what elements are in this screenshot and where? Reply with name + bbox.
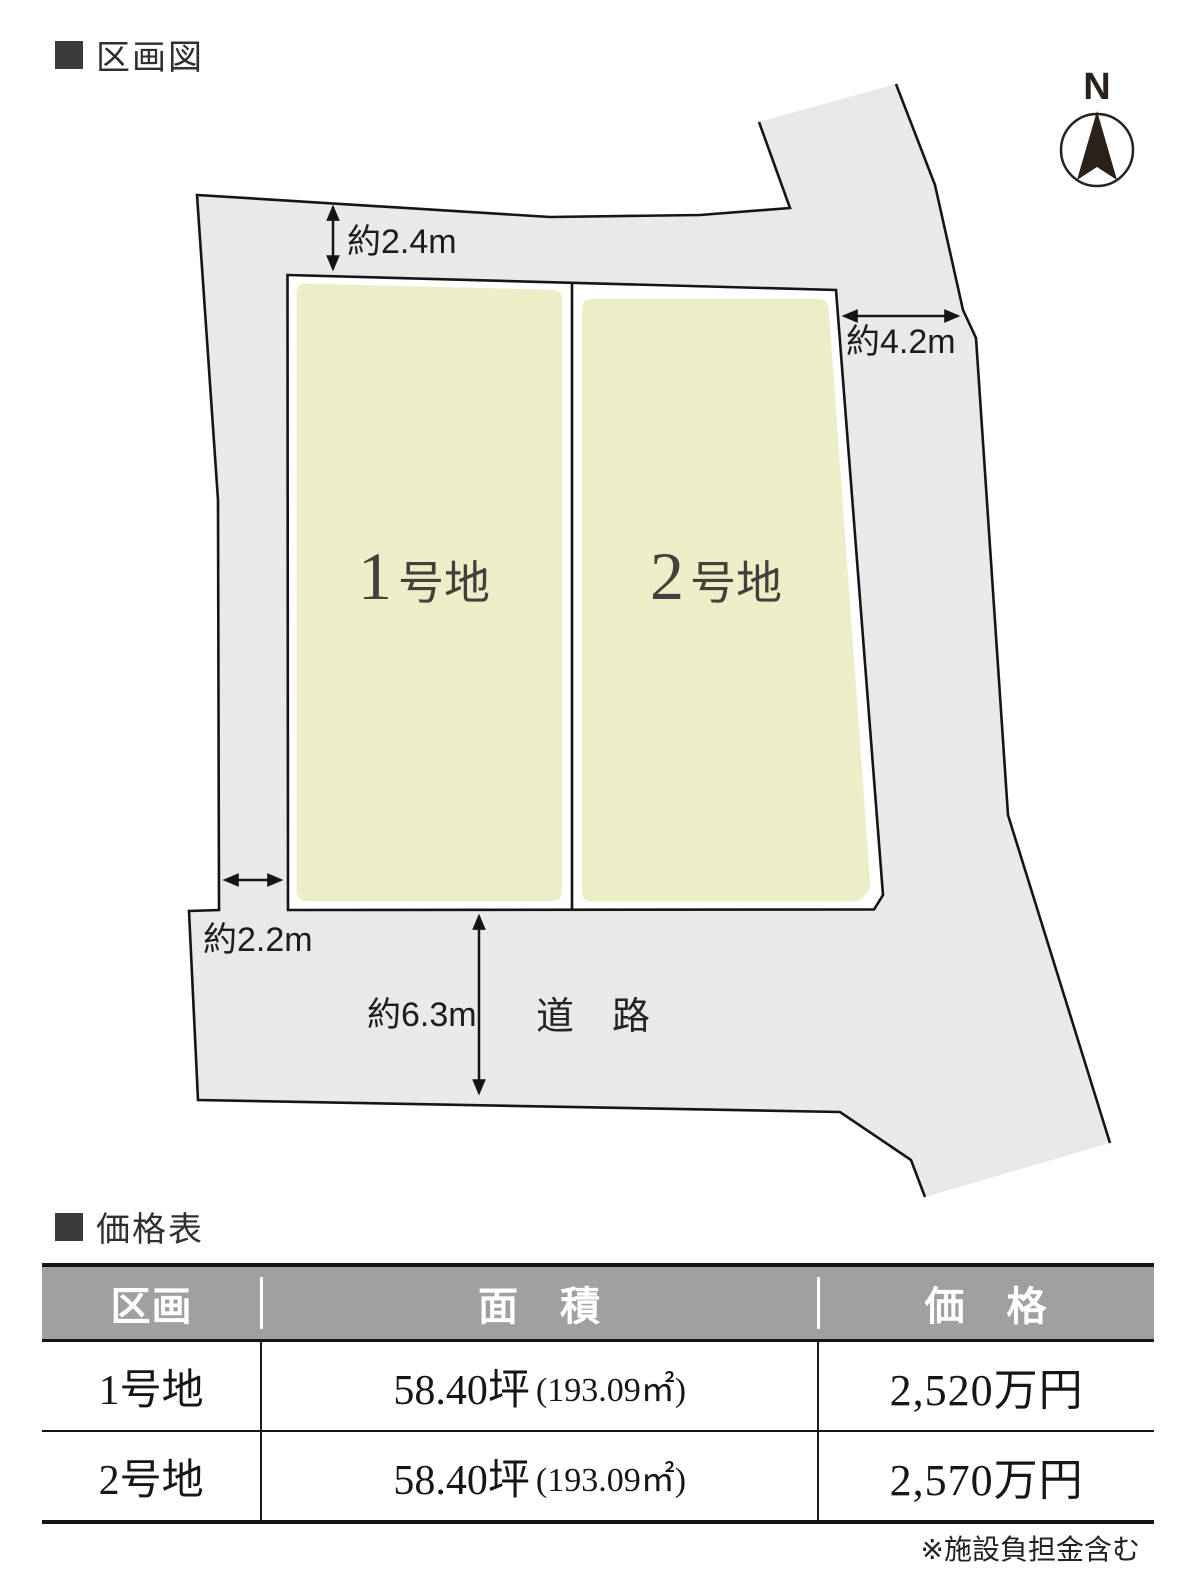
- header-divider: [817, 1277, 820, 1329]
- dim-left-label: 約2.2m: [203, 921, 313, 959]
- column-header-area: 面 積: [261, 1267, 818, 1339]
- heading-square-icon: [55, 1213, 83, 1241]
- cell-plot-area: 58.40坪 (193.09㎡): [262, 1342, 819, 1430]
- cell-plot-area: 58.40坪 (193.09㎡): [262, 1432, 819, 1520]
- compass-n-label: N: [1083, 66, 1110, 108]
- area-main: 58.40坪: [393, 1356, 530, 1417]
- price-table-header-row: 区画 面 積 価 格: [42, 1267, 1154, 1342]
- area-paren: (193.09㎡): [536, 1362, 686, 1411]
- header-divider: [260, 1277, 263, 1329]
- table-row-plot-1: 1号地 58.40坪 (193.09㎡) 2,520万円: [42, 1342, 1154, 1432]
- road-label: 道 路: [536, 996, 650, 1038]
- compass-icon: N: [1061, 66, 1133, 186]
- heading-square-icon: [55, 41, 83, 69]
- area-main: 58.40坪: [393, 1446, 530, 1507]
- cell-plot-price: 2,520万円: [819, 1342, 1154, 1430]
- price-table-heading: 価格表: [55, 1202, 204, 1251]
- price-table-heading-label: 価格表: [96, 1202, 204, 1251]
- cell-plot-name: 1号地: [42, 1342, 262, 1430]
- dim-road-label: 約6.3m: [367, 996, 477, 1034]
- price-table: 区画 面 積 価 格 1号地 58.40坪 (193.09㎡) 2,520万円 …: [42, 1263, 1154, 1524]
- column-header-section: 区画: [42, 1267, 261, 1339]
- dim-top-label: 約2.4m: [347, 223, 457, 261]
- dim-right-label: 約4.2m: [846, 323, 956, 361]
- footnote: ※施設負担金含む: [921, 1528, 1140, 1568]
- cell-plot-price: 2,570万円: [819, 1432, 1154, 1520]
- plot-map-heading: 区画図: [55, 30, 204, 79]
- plot-map-heading-label: 区画図: [96, 30, 204, 79]
- cell-plot-name: 2号地: [42, 1432, 262, 1520]
- table-row-plot-2: 2号地 58.40坪 (193.09㎡) 2,570万円: [42, 1432, 1154, 1520]
- flyer-page: 1号地 2号地 約2.4m 約4.2m 約2.2m 約6.3m 道 路 N 区画…: [0, 0, 1200, 1588]
- column-header-price: 価 格: [818, 1267, 1154, 1339]
- area-paren: (193.09㎡): [536, 1452, 686, 1501]
